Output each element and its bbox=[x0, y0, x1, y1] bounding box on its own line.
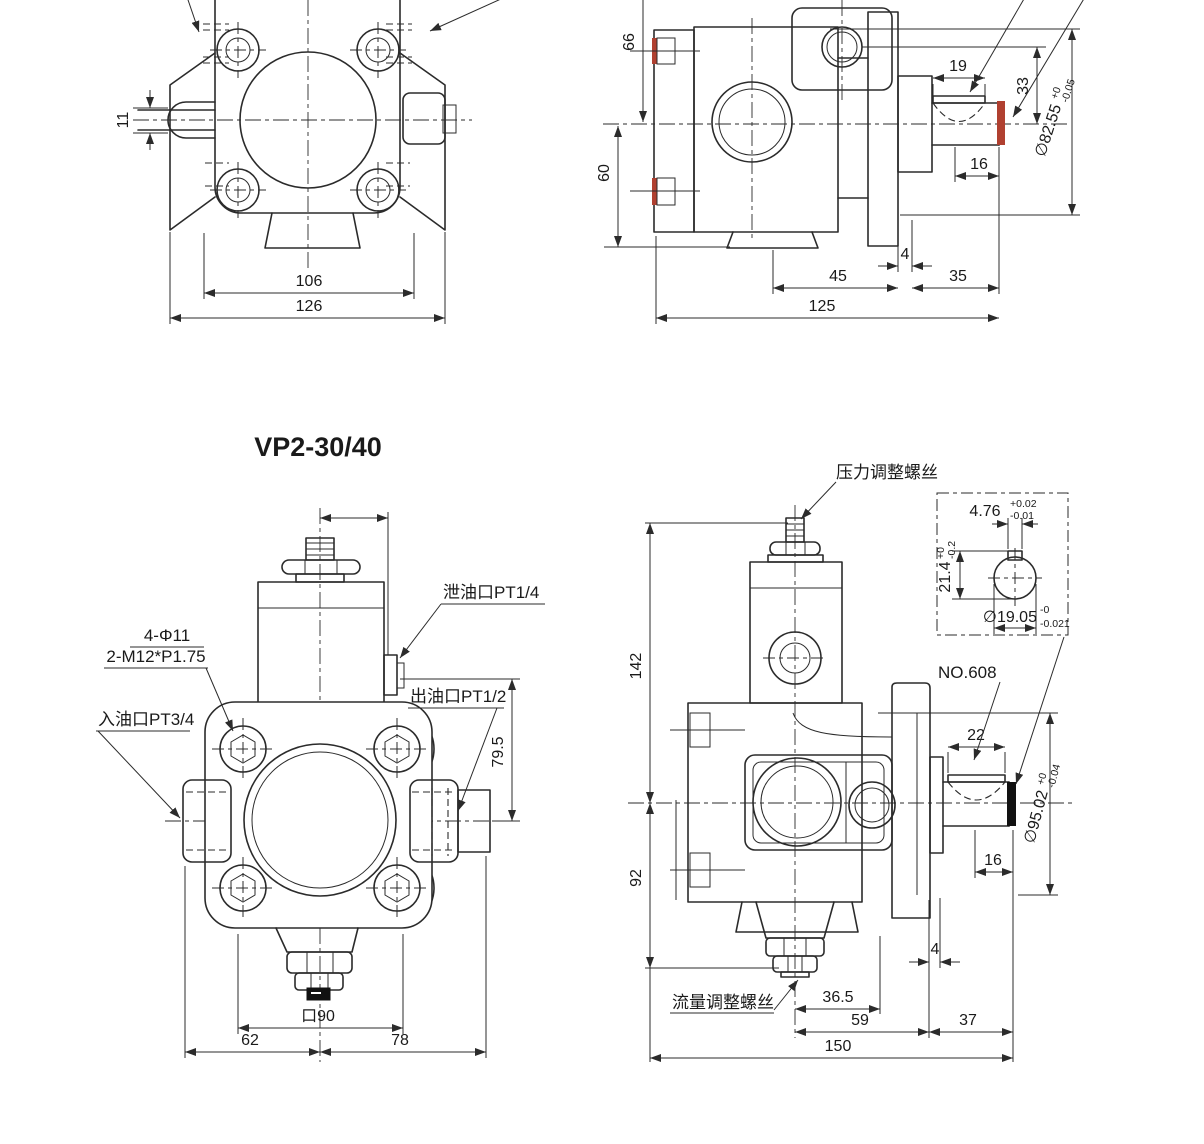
model-title: VP2-30/40 bbox=[254, 432, 382, 462]
svg-text:21.4: 21.4 bbox=[937, 561, 954, 592]
dim-key-width: 4.76 bbox=[969, 503, 1000, 520]
leader-left bbox=[186, 0, 199, 32]
leader-inlet bbox=[98, 731, 180, 818]
shaft-key bbox=[933, 96, 985, 103]
dim-gap-4: 4 bbox=[901, 246, 910, 263]
dim-45: 45 bbox=[829, 268, 847, 285]
dim-bolt-span: 106 bbox=[296, 273, 323, 290]
dim-59: 59 bbox=[851, 1012, 869, 1029]
shaft-dia-label: ∅82.55 +0 -0.05 bbox=[1030, 74, 1078, 160]
front-view-bottom: VP2-30/40 bbox=[96, 432, 545, 1062]
shaft-seal-mark bbox=[997, 101, 1005, 145]
leader-bearing bbox=[974, 682, 1000, 760]
dim-shaft-width: 11 bbox=[115, 112, 132, 129]
svg-text:-0.05: -0.05 bbox=[1059, 77, 1078, 104]
leader-right bbox=[430, 0, 512, 31]
keyseat-arc bbox=[948, 782, 1005, 800]
flange-body bbox=[215, 0, 400, 213]
right-port-boss bbox=[403, 93, 445, 144]
dim-36-5: 36.5 bbox=[822, 989, 853, 1006]
drawing-page: 11 106 126 bbox=[0, 0, 1204, 1144]
dim-key-height-label: 21.4 +0 -0.2 bbox=[935, 541, 958, 593]
dim-overall-width: 126 bbox=[296, 298, 323, 315]
label-drain-port: 泄油口PT1/4 bbox=[443, 583, 539, 602]
pump-body bbox=[694, 27, 838, 232]
leader-detail bbox=[1016, 637, 1064, 784]
svg-text:-0.04: -0.04 bbox=[1045, 763, 1063, 789]
shaft-key bbox=[948, 775, 1005, 782]
mounting-foot bbox=[736, 902, 858, 932]
dim-key-length: 19 bbox=[949, 58, 967, 75]
front-view-top: 11 106 126 bbox=[115, 0, 512, 324]
dim-60: 60 bbox=[596, 164, 613, 182]
flow-screw-neck bbox=[276, 928, 358, 952]
dim-150: 150 bbox=[825, 1038, 852, 1055]
dim-square-90: 口90 bbox=[301, 1008, 335, 1025]
main-port-inner bbox=[761, 766, 833, 838]
dim-62: 62 bbox=[241, 1032, 259, 1049]
svg-text:+0.02: +0.02 bbox=[1010, 498, 1037, 510]
bottom-boss bbox=[265, 213, 360, 248]
dim-16: 16 bbox=[984, 852, 1002, 869]
pressure-screw-washer bbox=[768, 555, 823, 562]
dim-16: 16 bbox=[970, 156, 988, 173]
dim-66: 66 bbox=[621, 33, 638, 51]
shaft-end-mark bbox=[1007, 782, 1016, 826]
key-detail-box: 4.76 +0.02 -0.01 21.4 +0 -0.2 ∅19.05 -0 … bbox=[935, 493, 1070, 635]
svg-text:-0.021: -0.021 bbox=[1040, 618, 1070, 630]
flow-screw-nut bbox=[295, 973, 343, 990]
label-outlet-port: 出油口PT1/2 bbox=[410, 687, 506, 706]
svg-text:-0.2: -0.2 bbox=[946, 541, 958, 559]
flange-disc bbox=[892, 683, 930, 918]
label-inlet-port: 入油口PT3/4 bbox=[98, 710, 194, 729]
leader-flow-screw bbox=[774, 980, 798, 1010]
pump-body bbox=[688, 703, 862, 902]
svg-text:∅95.02: ∅95.02 bbox=[1021, 788, 1051, 845]
dim-key-dia: ∅19.05 bbox=[983, 609, 1037, 626]
label-thread-holes: 2-M12*P1.75 bbox=[106, 647, 205, 666]
dim-92: 92 bbox=[628, 869, 645, 887]
dim-78: 78 bbox=[391, 1032, 409, 1049]
dim-37: 37 bbox=[959, 1012, 977, 1029]
label-bearing-no: NO.608 bbox=[938, 663, 997, 682]
leader-pressure-screw bbox=[801, 482, 836, 519]
left-mounting-ear bbox=[170, 53, 215, 230]
main-port-outer bbox=[753, 758, 841, 846]
flow-screw-hex bbox=[287, 952, 352, 973]
bearing-housing bbox=[930, 757, 943, 853]
dim-33: 33 bbox=[1015, 77, 1032, 95]
dim-79-5: 79.5 bbox=[490, 736, 507, 767]
small-port-outer bbox=[849, 782, 895, 828]
drain-port-boss bbox=[384, 655, 397, 695]
label-flow-screw: 流量调整螺丝 bbox=[672, 993, 774, 1012]
dim-35: 35 bbox=[949, 268, 967, 285]
leader-shaft-end bbox=[1013, 0, 1088, 117]
label-mount-holes: 4-Φ11 bbox=[144, 626, 190, 645]
rear-cover bbox=[654, 30, 694, 232]
svg-text:-0.01: -0.01 bbox=[1010, 510, 1034, 522]
right-mounting-ear bbox=[400, 53, 445, 230]
technical-drawing: 11 106 126 bbox=[0, 0, 1204, 1144]
keyseat-arc bbox=[933, 103, 985, 122]
leader-drain bbox=[400, 604, 441, 658]
pressure-screw-nut bbox=[282, 560, 360, 574]
svg-text:-0: -0 bbox=[1040, 604, 1049, 616]
casting-line bbox=[793, 713, 892, 737]
side-view-bottom: 142 92 22 16 ∅95.02 +0 -0.04 4 36.5 59 bbox=[628, 463, 1075, 1062]
label-pressure-screw: 压力调整螺丝 bbox=[836, 463, 938, 482]
spring-housing bbox=[258, 582, 384, 704]
side-view-top: 66 60 19 33 16 ∅82.55 +0 -0.05 4 45 bbox=[596, 0, 1088, 324]
dim-125: 125 bbox=[809, 298, 836, 315]
mounting-foot bbox=[727, 232, 818, 248]
dim-gap-4: 4 bbox=[931, 941, 940, 958]
dim-142: 142 bbox=[628, 653, 645, 680]
